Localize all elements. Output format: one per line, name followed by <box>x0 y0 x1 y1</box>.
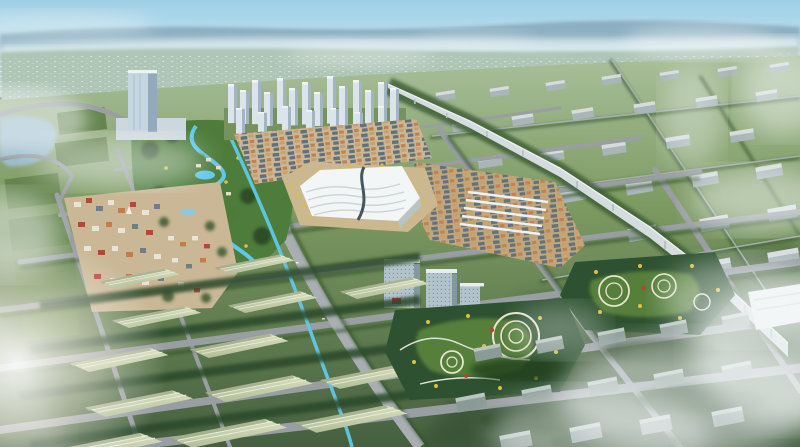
tower-face <box>128 72 148 132</box>
office-block <box>426 272 452 312</box>
aerial-masterplan-rendering <box>0 0 800 447</box>
tower-side <box>148 74 157 132</box>
flower-bed <box>642 286 646 290</box>
tower-cap <box>128 70 157 73</box>
exhibition-center <box>282 162 438 232</box>
town-pond <box>180 208 196 215</box>
